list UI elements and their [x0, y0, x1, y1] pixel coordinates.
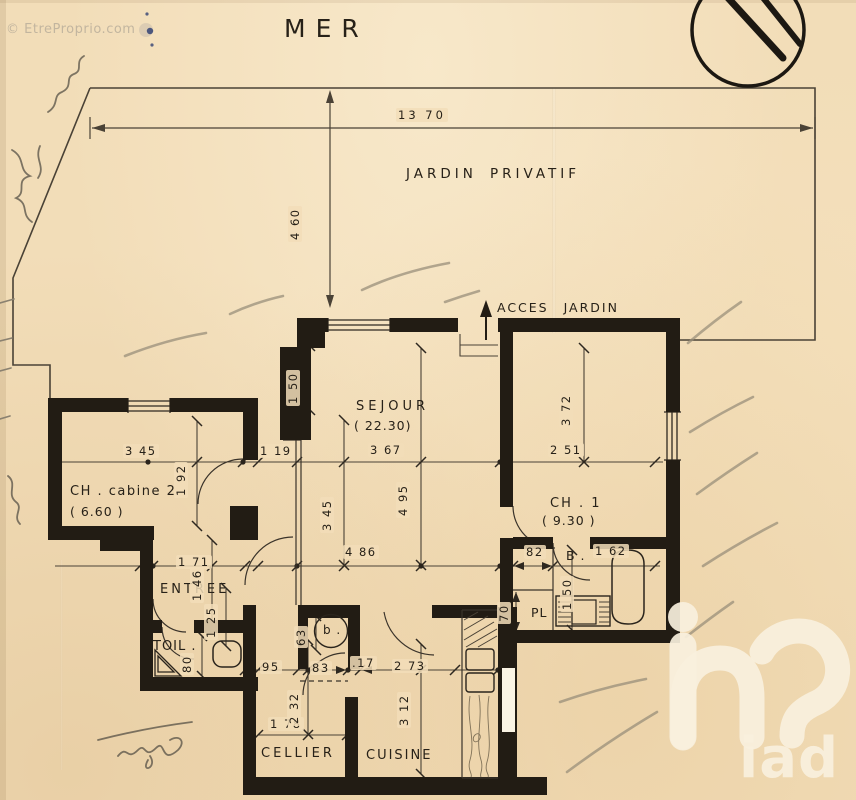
dim-garden-depth: 4 60: [288, 206, 302, 242]
dim-cabine-width: 3 45: [123, 444, 159, 458]
dim-hall3-width: 83: [310, 661, 332, 675]
dim-garden-width: 13 70: [396, 108, 448, 122]
room-label-cuisine: CUISINE: [366, 748, 432, 763]
page-title: MER: [284, 14, 369, 43]
room-label-placard: PL: [531, 605, 548, 620]
dim-sejour-offset: 1 50: [286, 370, 300, 406]
garden-label-word2: PRIVATIF: [490, 166, 580, 182]
dim-cuisine-height: 3 12: [397, 692, 411, 728]
dim-sejour-width: 3 67: [368, 443, 404, 457]
dim-sejour-height: 4 95: [396, 482, 410, 518]
room-label-toilettes: TOIL .: [153, 639, 197, 654]
dim-bath-height: 1 50: [560, 576, 574, 612]
room-label-ch1: CH . 1: [550, 496, 602, 511]
room-area-sejour: ( 22.30): [354, 418, 412, 433]
watermark: © EtreProprio.com: [6, 22, 135, 37]
dim-sejour-height2: 3 45: [320, 497, 334, 533]
room-label-cellier: CELLIER: [261, 746, 335, 761]
room-label-cabine: CH . cabine 2: [70, 484, 176, 499]
room-area-cabine: ( 6.60 ): [70, 504, 124, 519]
dim-entree-height2: 1 25: [204, 604, 218, 640]
room-label-ballon: b .: [323, 623, 341, 637]
room-area-ch1: ( 9.30 ): [542, 513, 596, 528]
dim-ballon-height: 63: [294, 626, 308, 648]
floor-plan-scan: © EtreProprio.com MER JARDIN PRIVATIF AC…: [0, 0, 856, 800]
dim-hall-width: 1 19: [258, 444, 294, 458]
dim-toil-width: 80: [180, 653, 194, 675]
dim-bath-width: 1 62: [593, 544, 629, 558]
dim-cabine-height: 1 92: [174, 462, 188, 498]
dim-sejour-width2: 4 86: [343, 545, 379, 559]
garden-access-label: ACCES JARDIN: [497, 300, 619, 315]
garden-label-word1: JARDIN: [406, 166, 477, 182]
dim-wall-thickness: .17: [350, 656, 377, 670]
room-label-bain: B .: [566, 548, 586, 563]
dim-cuisine-width: 2 73: [392, 659, 428, 673]
room-label-sejour: SEJOUR: [356, 399, 429, 414]
dim-hall2-width: 95: [260, 660, 282, 674]
dim-entree-height: 1 46: [190, 567, 204, 603]
dim-ch1-height: 3 72: [559, 392, 573, 428]
dim-placard-width: 70: [497, 602, 511, 624]
dim-bath-offset: 82: [524, 545, 546, 559]
dim-ch1-width: 2 51: [548, 443, 584, 457]
dim-cellier-height: 2 32: [287, 690, 301, 726]
